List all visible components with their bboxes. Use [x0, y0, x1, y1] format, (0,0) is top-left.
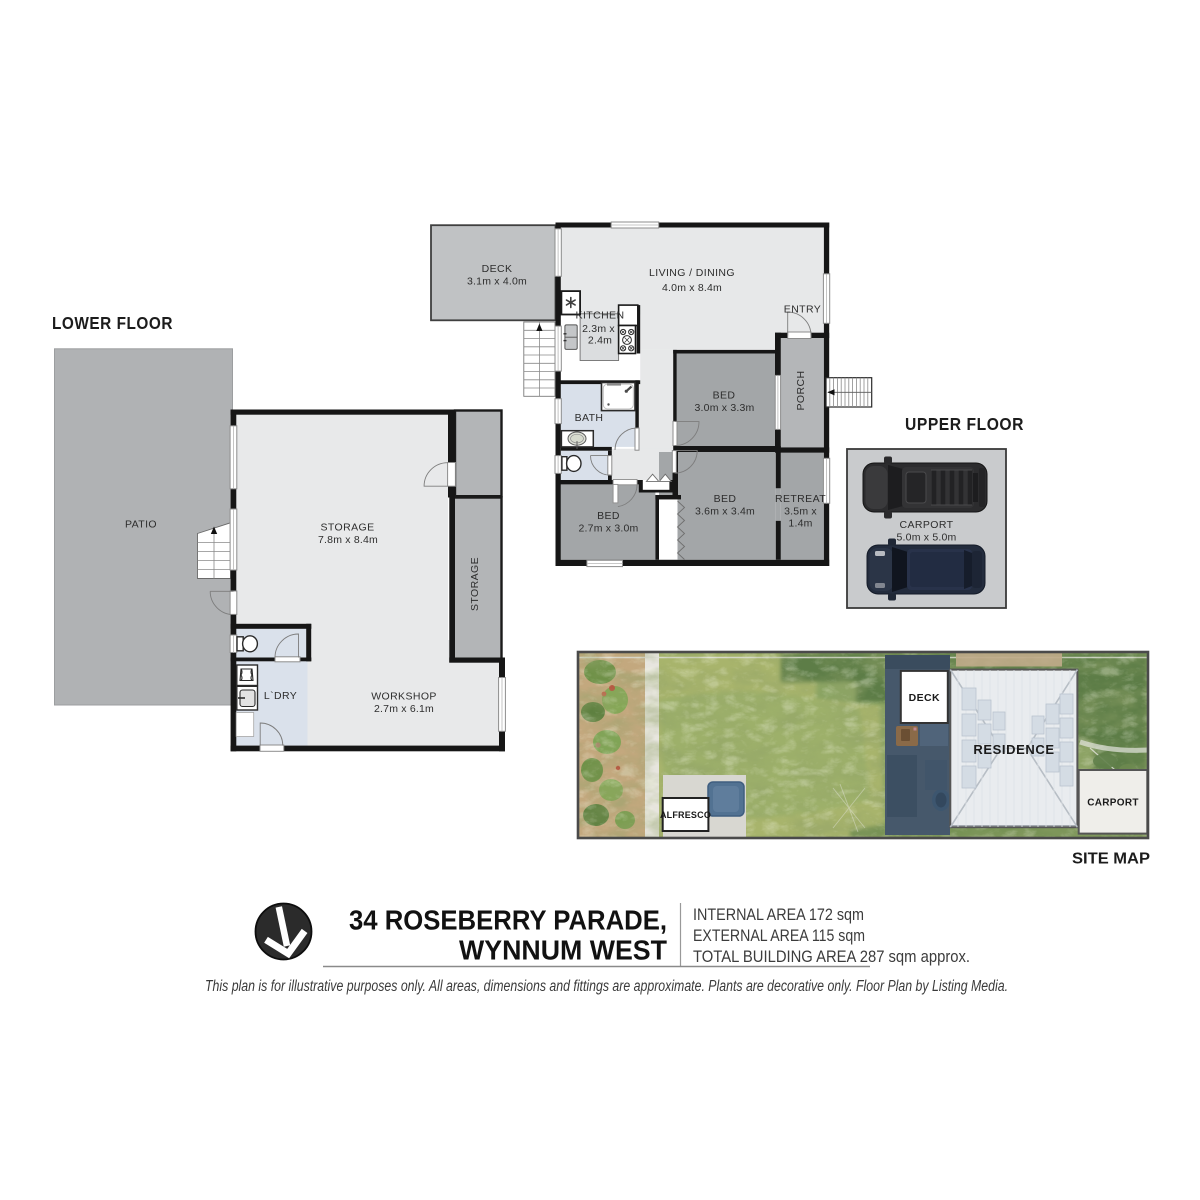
- svg-text:INTERNAL AREA 172 sqm: INTERNAL AREA 172 sqm: [693, 906, 864, 924]
- svg-text:RESIDENCE: RESIDENCE: [973, 742, 1054, 757]
- svg-text:2.4m: 2.4m: [588, 335, 612, 347]
- svg-text:BATH: BATH: [575, 412, 604, 424]
- svg-text:SITE MAP: SITE MAP: [1072, 851, 1150, 868]
- svg-text:WORKSHOP: WORKSHOP: [371, 691, 437, 703]
- svg-text:5.0m x 5.0m: 5.0m x 5.0m: [897, 532, 957, 544]
- svg-text:ENTRY: ENTRY: [784, 304, 821, 316]
- svg-text:LOWER FLOOR: LOWER FLOOR: [52, 313, 173, 333]
- svg-text:2.7m x 6.1m: 2.7m x 6.1m: [374, 703, 434, 715]
- svg-text:2.7m x 3.0m: 2.7m x 3.0m: [579, 523, 639, 535]
- svg-text:3.1m x 4.0m: 3.1m x 4.0m: [467, 276, 527, 288]
- svg-text:3.5m x: 3.5m x: [784, 506, 817, 518]
- svg-text:BED: BED: [713, 390, 736, 402]
- svg-text:LIVING / DINING: LIVING / DINING: [649, 267, 735, 279]
- svg-text:EXTERNAL AREA 115 sqm: EXTERNAL AREA 115 sqm: [693, 927, 865, 945]
- svg-text:PORCH: PORCH: [795, 371, 807, 411]
- svg-text:CARPORT: CARPORT: [1087, 798, 1139, 809]
- svg-text:STORAGE: STORAGE: [321, 522, 375, 534]
- svg-text:WYNNUM WEST: WYNNUM WEST: [459, 935, 667, 966]
- svg-text:KITCHEN: KITCHEN: [576, 310, 625, 322]
- svg-text:1.4m: 1.4m: [788, 518, 812, 530]
- svg-text:BED: BED: [597, 510, 620, 522]
- svg-text:This plan is for illustrative: This plan is for illustrative purposes o…: [205, 978, 1008, 995]
- svg-text:RETREAT: RETREAT: [775, 493, 826, 505]
- svg-text:TOTAL BUILDING AREA 287 sqm ap: TOTAL BUILDING AREA 287 sqm approx.: [693, 948, 970, 966]
- svg-text:ALFRESCO: ALFRESCO: [660, 810, 711, 820]
- svg-text:STORAGE: STORAGE: [469, 557, 481, 611]
- svg-text:PATIO: PATIO: [125, 519, 157, 531]
- svg-text:3.6m x 3.4m: 3.6m x 3.4m: [695, 506, 755, 518]
- svg-text:CARPORT: CARPORT: [900, 519, 954, 531]
- svg-text:4.0m x 8.4m: 4.0m x 8.4m: [662, 282, 722, 294]
- svg-text:BED: BED: [714, 493, 737, 505]
- svg-text:DECK: DECK: [909, 692, 940, 704]
- svg-text:L`DRY: L`DRY: [264, 690, 297, 702]
- svg-text:34 ROSEBERRY PARADE,: 34 ROSEBERRY PARADE,: [349, 905, 667, 936]
- svg-text:3.0m x 3.3m: 3.0m x 3.3m: [695, 402, 755, 414]
- svg-text:DECK: DECK: [482, 263, 513, 275]
- svg-text:2.3m x: 2.3m x: [582, 323, 615, 335]
- svg-text:UPPER FLOOR: UPPER FLOOR: [905, 414, 1024, 434]
- svg-text:7.8m x 8.4m: 7.8m x 8.4m: [318, 534, 378, 546]
